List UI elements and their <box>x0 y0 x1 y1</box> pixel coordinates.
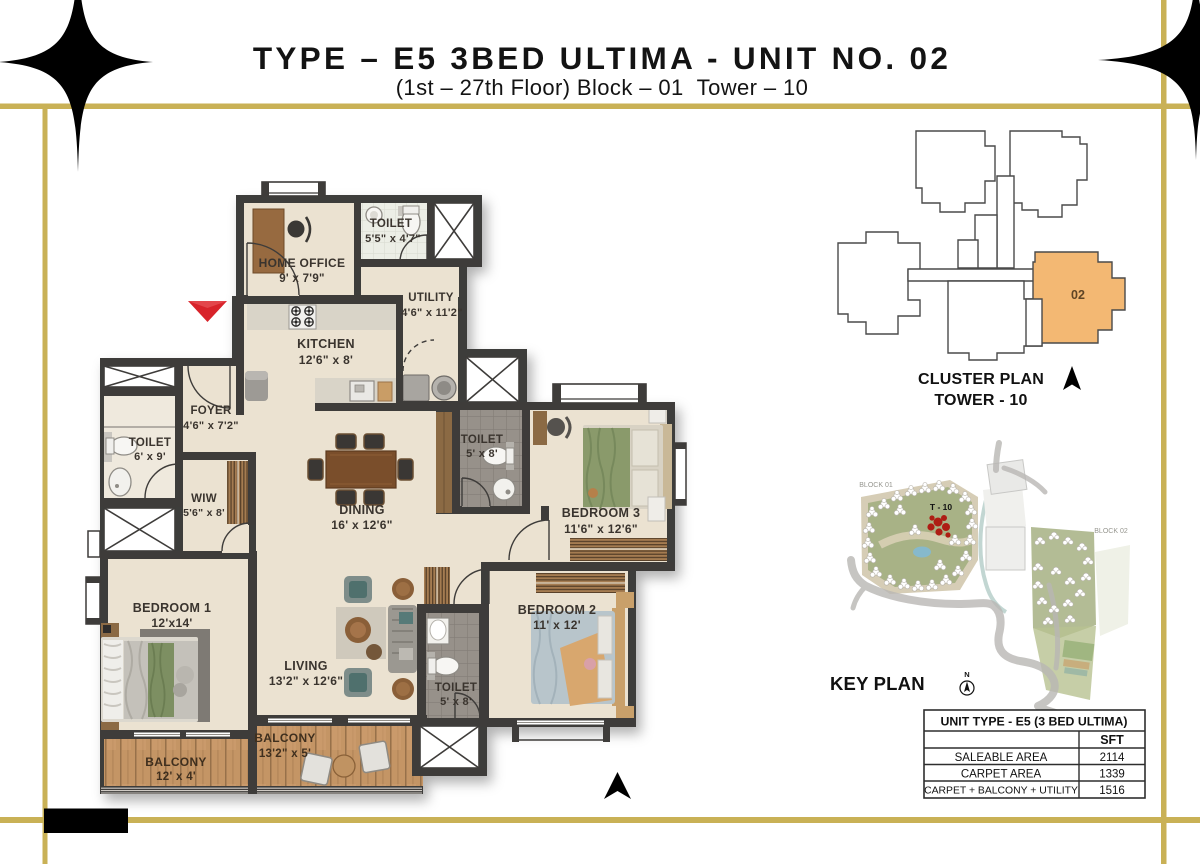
svg-text:KEY PLAN: KEY PLAN <box>830 673 925 694</box>
svg-text:KITCHEN: KITCHEN <box>297 337 355 351</box>
svg-text:6' x 9': 6' x 9' <box>134 451 166 463</box>
svg-text:5'6" x 8': 5'6" x 8' <box>183 507 225 519</box>
svg-text:BEDROOM 3: BEDROOM 3 <box>562 506 640 520</box>
svg-text:BEDROOM 2: BEDROOM 2 <box>518 603 596 617</box>
svg-text:9' x 7'9": 9' x 7'9" <box>279 273 325 285</box>
svg-text:UTILITY: UTILITY <box>408 292 454 304</box>
svg-text:1516: 1516 <box>1099 785 1125 797</box>
svg-text:TOILET: TOILET <box>435 682 477 694</box>
svg-text:UNIT TYPE - E5 (3 BED ULTIMA): UNIT TYPE - E5 (3 BED ULTIMA) <box>941 715 1128 729</box>
svg-text:11'6" x 12'6": 11'6" x 12'6" <box>564 522 638 536</box>
svg-text:WIW: WIW <box>191 493 217 505</box>
svg-text:5'5" x 4'7": 5'5" x 4'7" <box>365 233 421 245</box>
svg-text:BALCONY: BALCONY <box>254 731 315 745</box>
svg-text:BLOCK 01: BLOCK 01 <box>859 482 893 489</box>
svg-text:LIVING: LIVING <box>284 659 327 673</box>
svg-text:13'2" x 12'6": 13'2" x 12'6" <box>269 674 343 688</box>
svg-text:TOILET: TOILET <box>129 437 171 449</box>
svg-text:(1st – 27th Floor) Block – 01: (1st – 27th Floor) Block – 01 Tower – 10 <box>396 75 809 100</box>
svg-text:CARPET AREA: CARPET AREA <box>961 769 1042 781</box>
svg-text:2114: 2114 <box>1100 752 1125 764</box>
svg-text:N: N <box>964 670 969 679</box>
svg-text:TYPE – E5 3BED ULTIMA - UNIT N: TYPE – E5 3BED ULTIMA - UNIT NO. 02 <box>253 40 951 76</box>
svg-text:4'6" x 7'2": 4'6" x 7'2" <box>183 420 239 432</box>
svg-text:BLOCK 02: BLOCK 02 <box>1094 528 1128 535</box>
svg-text:TOWER - 10: TOWER - 10 <box>934 392 1027 409</box>
svg-text:CLUSTER PLAN: CLUSTER PLAN <box>918 371 1044 388</box>
svg-text:TOILET: TOILET <box>370 218 412 230</box>
svg-text:SALEABLE AREA: SALEABLE AREA <box>955 752 1048 764</box>
svg-text:02: 02 <box>1071 288 1085 302</box>
svg-text:TOILET: TOILET <box>461 434 503 446</box>
svg-text:T - 10: T - 10 <box>930 502 952 512</box>
svg-text:1339: 1339 <box>1099 769 1125 781</box>
svg-text:SFT: SFT <box>1100 733 1124 747</box>
svg-text:CARPET + BALCONY + UTILITY: CARPET + BALCONY + UTILITY <box>924 786 1078 797</box>
svg-text:11' x 12': 11' x 12' <box>533 618 581 632</box>
svg-text:12'6" x 8': 12'6" x 8' <box>299 353 353 367</box>
svg-text:BALCONY: BALCONY <box>145 755 206 769</box>
svg-text:12' x 4': 12' x 4' <box>156 771 196 783</box>
svg-text:FOYER: FOYER <box>190 405 232 417</box>
svg-text:13'2" x 5': 13'2" x 5' <box>259 748 311 760</box>
svg-text:16' x 12'6": 16' x 12'6" <box>331 518 392 532</box>
svg-text:HOME OFFICE: HOME OFFICE <box>259 256 346 270</box>
svg-text:12'x14': 12'x14' <box>151 616 192 630</box>
svg-text:5' x 8': 5' x 8' <box>440 696 472 708</box>
svg-text:5' x 8': 5' x 8' <box>466 448 498 460</box>
svg-text:BEDROOM 1: BEDROOM 1 <box>133 601 211 615</box>
svg-text:DINING: DINING <box>339 503 385 517</box>
svg-text:4'6" x 11'2": 4'6" x 11'2" <box>401 307 462 319</box>
